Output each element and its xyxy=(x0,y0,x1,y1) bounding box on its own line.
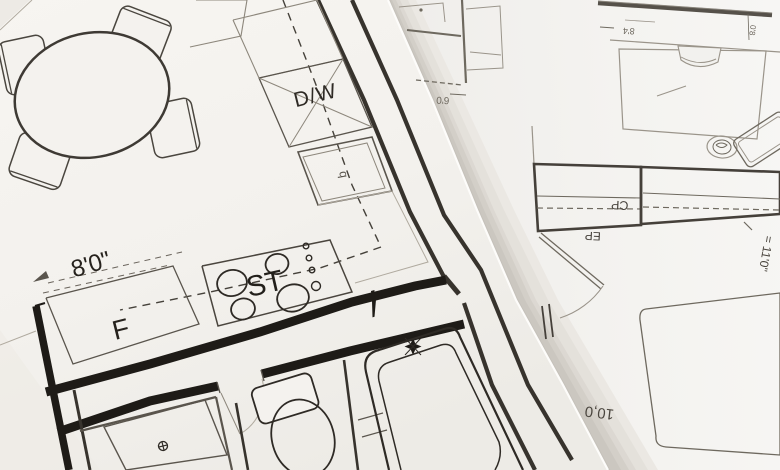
svg-text:6'0: 6'0 xyxy=(436,94,450,106)
svg-text:CP: CP xyxy=(611,198,629,213)
svg-text:EP: EP xyxy=(584,229,601,244)
svg-text:8'4: 8'4 xyxy=(623,26,635,37)
svg-text:10,0: 10,0 xyxy=(584,402,615,422)
